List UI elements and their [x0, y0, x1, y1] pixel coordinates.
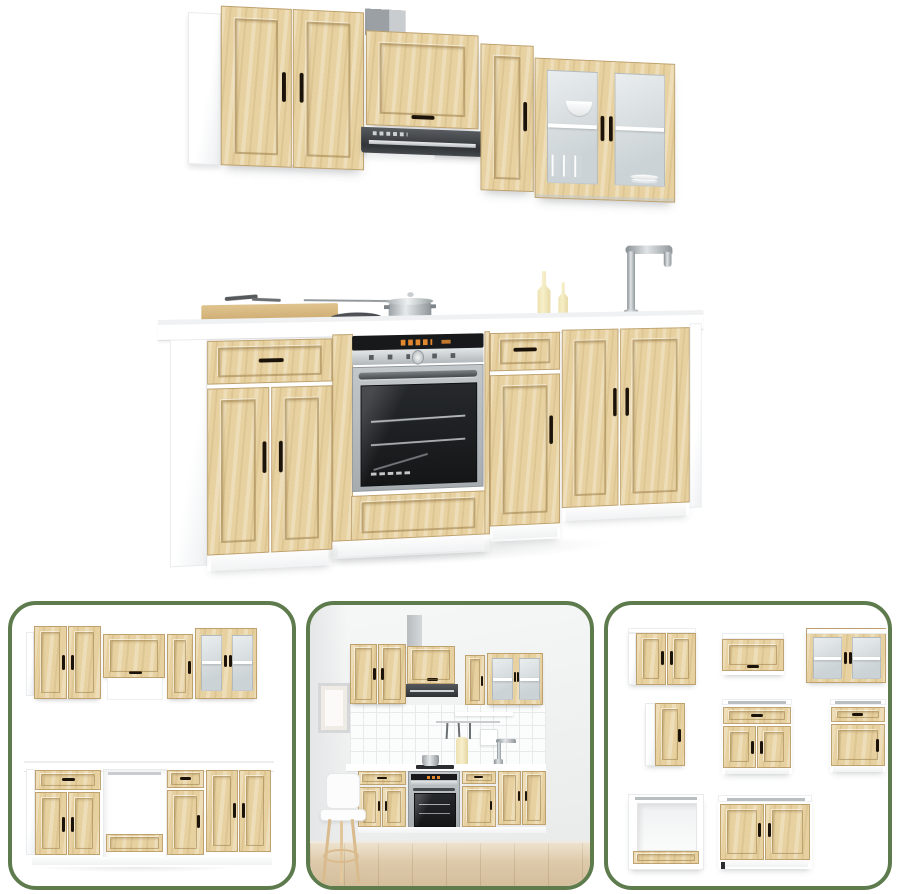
cabinet-side-panel: [26, 769, 35, 855]
plate-stack: [631, 174, 659, 180]
door-handle: [601, 116, 605, 141]
oven-knob-band: [352, 348, 483, 366]
extractor-hood: [406, 684, 458, 697]
oven-handle: [359, 370, 477, 380]
cabinet-side-panel: [170, 339, 207, 567]
plinth: [32, 857, 272, 865]
door-handle: [373, 668, 376, 680]
hanging-utensil: [458, 723, 461, 737]
sink-base-cabinet: [562, 325, 690, 521]
hood-chimney: [407, 615, 422, 647]
oven-rack: [419, 804, 450, 805]
wall-cabinet-glass: [195, 628, 257, 699]
glass-pane: [852, 637, 881, 679]
plinth: [493, 523, 558, 539]
faucet-column: [627, 251, 635, 311]
open-top-slot: [727, 798, 805, 801]
oven-base-drawer: [633, 851, 699, 864]
door-handle: [129, 671, 142, 674]
wall-cabinet-double-door: [350, 644, 406, 704]
base-cabinet-drawer-one-door: [462, 771, 496, 827]
door-handle: [678, 729, 681, 742]
wall-shelf: [455, 712, 513, 716]
built-in-oven: [352, 331, 484, 494]
wall-cabinet-flip-up: [722, 633, 784, 675]
oven-rack: [419, 813, 450, 814]
door-handle: [747, 665, 759, 668]
cabinet-side-panel: [26, 632, 34, 696]
carcass-top: [718, 795, 812, 802]
wall-cabinet-glass: [535, 58, 675, 203]
sink-base-cabinet: [718, 795, 812, 869]
wall-cabinet-row: [188, 0, 692, 231]
wall-cabinet-flip-up: [366, 30, 479, 129]
door-handle: [427, 678, 438, 681]
oven-base-drawer: [351, 490, 485, 540]
hood-trim: [369, 140, 476, 148]
door-handle: [490, 801, 492, 810]
carcass-top: [830, 699, 886, 705]
door-handle: [300, 73, 304, 103]
faucet: [494, 739, 520, 765]
wall-cabinet-single-door: [167, 634, 193, 699]
door-handle: [279, 441, 283, 473]
thumbnail-gallery: [8, 601, 892, 891]
door-handle: [481, 676, 483, 686]
wall-cabinet-single-door: [480, 43, 533, 192]
door-handle: [282, 72, 286, 102]
drawer-front: [490, 332, 560, 372]
stemware-glasses: [552, 155, 586, 178]
utensil-spoon: [252, 298, 281, 302]
thumbnail-unit-overview[interactable]: [604, 601, 892, 890]
door-handle: [229, 655, 232, 667]
door-handle: [625, 388, 629, 416]
glass-pane: [232, 635, 253, 691]
built-in-oven: [408, 771, 460, 829]
wall-cabinet-single-door: [645, 703, 685, 766]
carcass-top: [807, 629, 887, 634]
door-handle: [523, 102, 527, 131]
door-handle: [381, 668, 384, 680]
oven-cavity: [637, 803, 697, 851]
drawer-handle: [751, 714, 763, 717]
cabinet-stile: [332, 334, 353, 542]
glass-pane: [492, 658, 513, 700]
drawer-handle: [852, 713, 863, 716]
oven-housing-cabinet: [332, 329, 490, 559]
cabinet-door: [562, 329, 619, 508]
cabinet-side-panel: [628, 633, 636, 685]
door-handle: [876, 739, 879, 752]
stool-backrest: [326, 773, 360, 809]
base-cabinet-row: [158, 236, 710, 585]
hanging-utensil: [446, 723, 449, 739]
thumbnail-front-view[interactable]: [8, 601, 296, 890]
drawer-handle: [259, 358, 284, 363]
utensil-rail: [436, 721, 500, 749]
bowl: [566, 101, 592, 117]
vase: [456, 737, 468, 765]
base-cabinet-drawer-one-door: [167, 769, 204, 857]
oven-housing-open: [103, 769, 167, 859]
cabinet-door: [620, 327, 689, 505]
door-handle: [62, 817, 65, 832]
flip-door: [407, 646, 455, 684]
door-handle: [385, 801, 387, 811]
hood-trim: [410, 690, 454, 692]
door-handle: [751, 741, 754, 754]
extractor-hood: [361, 127, 483, 157]
oven-rack: [371, 438, 465, 447]
drawer-handle: [513, 347, 536, 351]
oven-display-dot: [441, 340, 450, 344]
wall-cabinet-glass: [806, 628, 886, 683]
door-handle: [517, 672, 519, 682]
door-handle: [758, 823, 761, 837]
door-handle: [849, 652, 852, 664]
oven-handle: [413, 788, 455, 791]
cooking-pot: [422, 755, 439, 766]
faucet-spout: [664, 252, 672, 267]
drawer-handle: [377, 777, 387, 779]
open-top-slot: [835, 701, 881, 704]
bar-stool: [314, 773, 364, 885]
cabinet-door: [207, 387, 269, 556]
wall-cabinet-double-door: [628, 628, 696, 685]
pot-handle: [384, 305, 390, 309]
oven-knobs: [432, 353, 469, 359]
door-handle: [514, 672, 516, 682]
oven-knobs: [369, 354, 410, 360]
hanging-utensil: [469, 723, 471, 739]
base-cabinet-drawer-two-doors: [35, 769, 101, 857]
base-cabinet-drawer-two-doors: [722, 699, 792, 774]
pot-handle: [430, 304, 436, 308]
door-handle: [71, 655, 74, 670]
door-handle: [224, 655, 227, 667]
oven-door: [352, 364, 483, 492]
cabinet-side-panel: [690, 323, 702, 508]
cabinet-side-panel: [645, 703, 655, 766]
stool-seat: [320, 809, 366, 821]
picture-frame: [318, 683, 350, 733]
door-handle: [188, 661, 191, 674]
main-photo[interactable]: [0, 0, 900, 580]
oven-knob-band: [411, 781, 457, 786]
stool-footrest: [323, 849, 359, 863]
door-handle: [525, 791, 527, 801]
open-top-slot: [635, 797, 697, 800]
wall-cabinet-double-door: [221, 6, 364, 171]
door-handle: [71, 817, 74, 832]
flip-door: [103, 634, 165, 678]
door-handle: [378, 801, 380, 811]
open-top-slot: [108, 772, 161, 775]
door-handle: [609, 116, 613, 141]
hood-underside: [367, 153, 435, 163]
t1-base-row: [12, 755, 292, 875]
plinth: [833, 766, 883, 772]
cabinet-foot: [721, 862, 725, 869]
door-handle: [263, 441, 267, 473]
oven-glass: [361, 382, 478, 486]
door-handle: [844, 652, 847, 664]
cabinet-side-panel: [188, 12, 221, 165]
base-cabinet-drawer-one-door: [830, 699, 886, 772]
oven-control-panel: [411, 774, 457, 780]
oven-rack: [371, 415, 465, 423]
glass-pane: [201, 635, 222, 691]
wall-cabinet-single-door: [465, 655, 485, 705]
door-handle: [62, 655, 65, 670]
oven-housing-open: [628, 794, 704, 870]
door-handle: [670, 651, 673, 665]
glass-pane: [519, 658, 540, 700]
door-handle: [661, 651, 664, 665]
door-handle: [549, 415, 553, 444]
oven-display: [427, 776, 441, 779]
base-cabinet-drawer-one-door: [490, 330, 560, 542]
oven-reflection: [373, 453, 428, 471]
glass-pane: [813, 637, 842, 679]
glass-pane: [547, 70, 598, 185]
thumbnail-room-scene[interactable]: [306, 601, 594, 890]
cabinet-door: [765, 804, 810, 860]
door-handle: [233, 803, 236, 818]
door-handle: [242, 803, 245, 818]
floor-shadow: [24, 867, 276, 875]
door-handle: [518, 791, 520, 801]
plinth: [725, 768, 789, 774]
open-top-slot: [728, 701, 786, 704]
hood-buttons: [373, 131, 408, 136]
drawer-handle: [62, 778, 75, 781]
wall-cabinet-double-door: [34, 626, 101, 699]
carcass-top: [722, 699, 792, 705]
base-cabinet-drawer-two-doors: [207, 336, 332, 571]
door-handle: [768, 823, 771, 837]
hood-recess: [107, 678, 163, 700]
door-handle: [197, 815, 200, 828]
door-handle: [760, 741, 763, 754]
oven-base-drawer: [106, 834, 163, 852]
product-image: [0, 0, 900, 894]
sink-base-cabinet: [206, 769, 272, 857]
glass-pane: [615, 73, 665, 187]
drawer-handle: [180, 777, 191, 780]
drawer-handle: [474, 776, 483, 778]
oven-display: [401, 339, 432, 345]
t1-wall-row: [12, 605, 292, 725]
oven-glass: [414, 793, 456, 827]
pot-knob: [407, 292, 413, 297]
sink-base-cabinet: [498, 771, 546, 827]
cabinet-door: [490, 373, 560, 526]
plinth: [358, 827, 546, 833]
oven-vent-slits: [371, 471, 410, 475]
door-handle: [613, 388, 617, 416]
plinth: [722, 860, 808, 867]
wall-cabinet-glass: [487, 653, 543, 705]
oven-dial: [412, 350, 424, 365]
